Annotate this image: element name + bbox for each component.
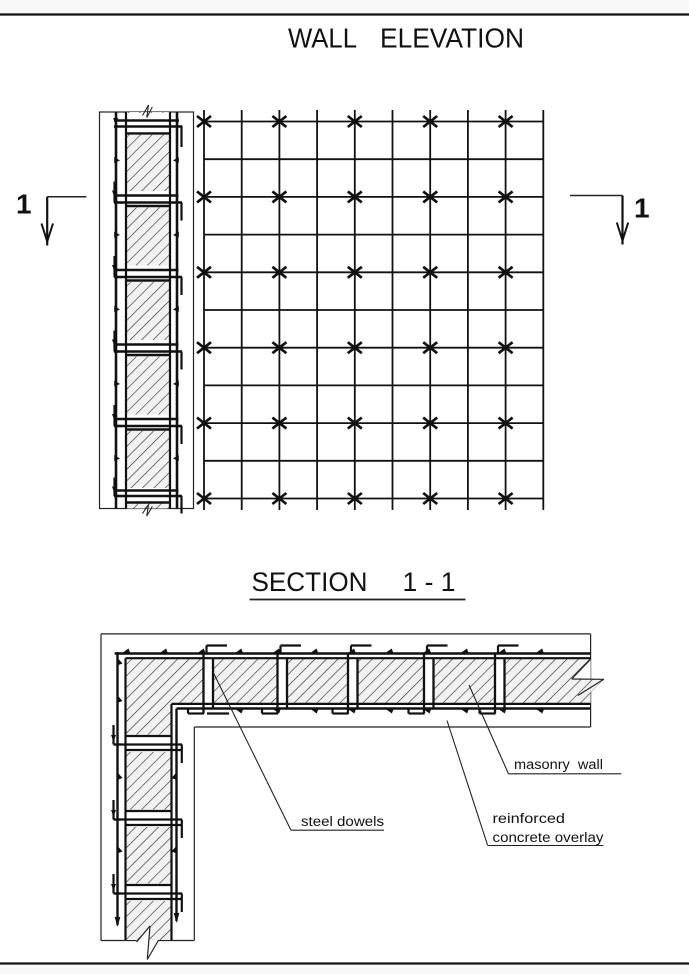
svg-text:ELEVATION: ELEVATION: [380, 23, 524, 54]
svg-text:concrete overlay: concrete overlay: [493, 830, 604, 845]
svg-text:1: 1: [16, 189, 32, 220]
svg-text:reinforced: reinforced: [493, 811, 566, 826]
svg-text:1: 1: [634, 193, 650, 224]
svg-text:steel dowels: steel dowels: [301, 814, 384, 829]
svg-text:1 - 1: 1 - 1: [403, 567, 456, 597]
svg-text:masonry wall: masonry wall: [514, 757, 603, 772]
svg-text:SECTION: SECTION: [252, 567, 368, 597]
svg-text:WALL: WALL: [288, 23, 357, 54]
